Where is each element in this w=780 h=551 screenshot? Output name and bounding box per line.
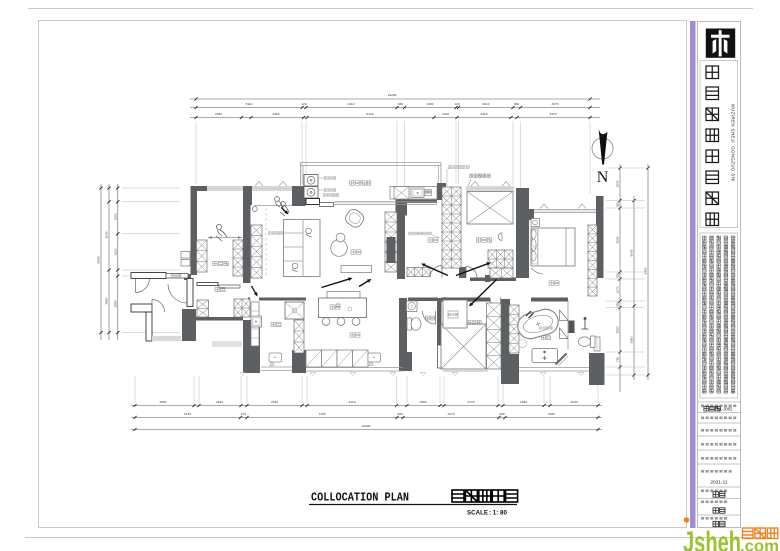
svg-text:2230: 2230 — [216, 400, 223, 404]
svg-text:360: 360 — [398, 102, 403, 106]
svg-text:310: 310 — [616, 202, 620, 207]
svg-text:22090: 22090 — [362, 424, 371, 428]
svg-text:320: 320 — [616, 302, 620, 307]
svg-text:4410: 4410 — [349, 400, 356, 404]
svg-text:1930: 1930 — [520, 400, 527, 404]
svg-text:2610: 2610 — [271, 400, 278, 404]
svg-text:2520: 2520 — [616, 326, 620, 333]
svg-text:1560: 1560 — [420, 400, 427, 404]
svg-text:120: 120 — [301, 102, 306, 106]
svg-text:5110: 5110 — [246, 102, 253, 106]
svg-text:2330: 2330 — [215, 112, 222, 116]
svg-text:SCALE: SCALE — [467, 510, 488, 517]
svg-text:3040: 3040 — [105, 231, 109, 238]
svg-text:9340: 9340 — [644, 267, 648, 274]
svg-text:6830: 6830 — [97, 256, 101, 263]
svg-text:2650: 2650 — [160, 400, 167, 404]
svg-text:4410: 4410 — [348, 102, 355, 106]
svg-text:N: N — [597, 169, 609, 186]
svg-text:4470: 4470 — [448, 412, 455, 416]
svg-text:360: 360 — [514, 102, 519, 106]
svg-text:320: 320 — [616, 273, 620, 278]
svg-text:2610: 2610 — [483, 102, 490, 106]
svg-text:1620: 1620 — [113, 248, 117, 255]
svg-text:3350: 3350 — [630, 336, 634, 343]
svg-text:270: 270 — [241, 412, 246, 416]
svg-text:: 1: 80: : 1: 80 — [489, 510, 507, 517]
svg-text:2021-11: 2021-11 — [710, 480, 728, 486]
svg-text:4320: 4320 — [548, 412, 555, 416]
svg-text:2610: 2610 — [481, 112, 488, 116]
svg-text:1540: 1540 — [616, 180, 620, 187]
svg-text:120: 120 — [454, 102, 459, 106]
svg-text:3370: 3370 — [550, 112, 557, 116]
svg-text:6130: 6130 — [367, 112, 374, 116]
svg-text:19200: 19200 — [388, 93, 397, 97]
svg-text:3370: 3370 — [552, 102, 559, 106]
svg-text:1120: 1120 — [442, 112, 449, 116]
svg-text:2460: 2460 — [273, 112, 280, 116]
svg-text:MUZIREN SHEJI GONGZUO SHI: MUZIREN SHEJI GONGZUO SHI — [731, 104, 736, 182]
svg-text:1-3002: 1-3002 — [719, 406, 733, 411]
svg-text:COLLOCATION PLAN: COLLOCATION PLAN — [311, 492, 409, 505]
svg-text:2240: 2240 — [571, 400, 578, 404]
svg-text:2880: 2880 — [113, 300, 117, 307]
svg-text:280: 280 — [499, 412, 504, 416]
svg-text:5130: 5130 — [184, 412, 191, 416]
svg-text:5090: 5090 — [630, 249, 634, 256]
svg-text:7150: 7150 — [319, 412, 326, 416]
svg-text:1070: 1070 — [616, 286, 620, 293]
svg-text:280: 280 — [397, 412, 402, 416]
svg-text:3090: 3090 — [616, 236, 620, 243]
svg-text:Jsheh: Jsheh — [683, 526, 741, 551]
svg-text:2770: 2770 — [468, 400, 475, 404]
svg-text:2880: 2880 — [105, 297, 109, 304]
svg-text:730: 730 — [616, 357, 620, 362]
svg-text:1600: 1600 — [113, 213, 117, 220]
svg-text:2490: 2490 — [427, 102, 434, 106]
